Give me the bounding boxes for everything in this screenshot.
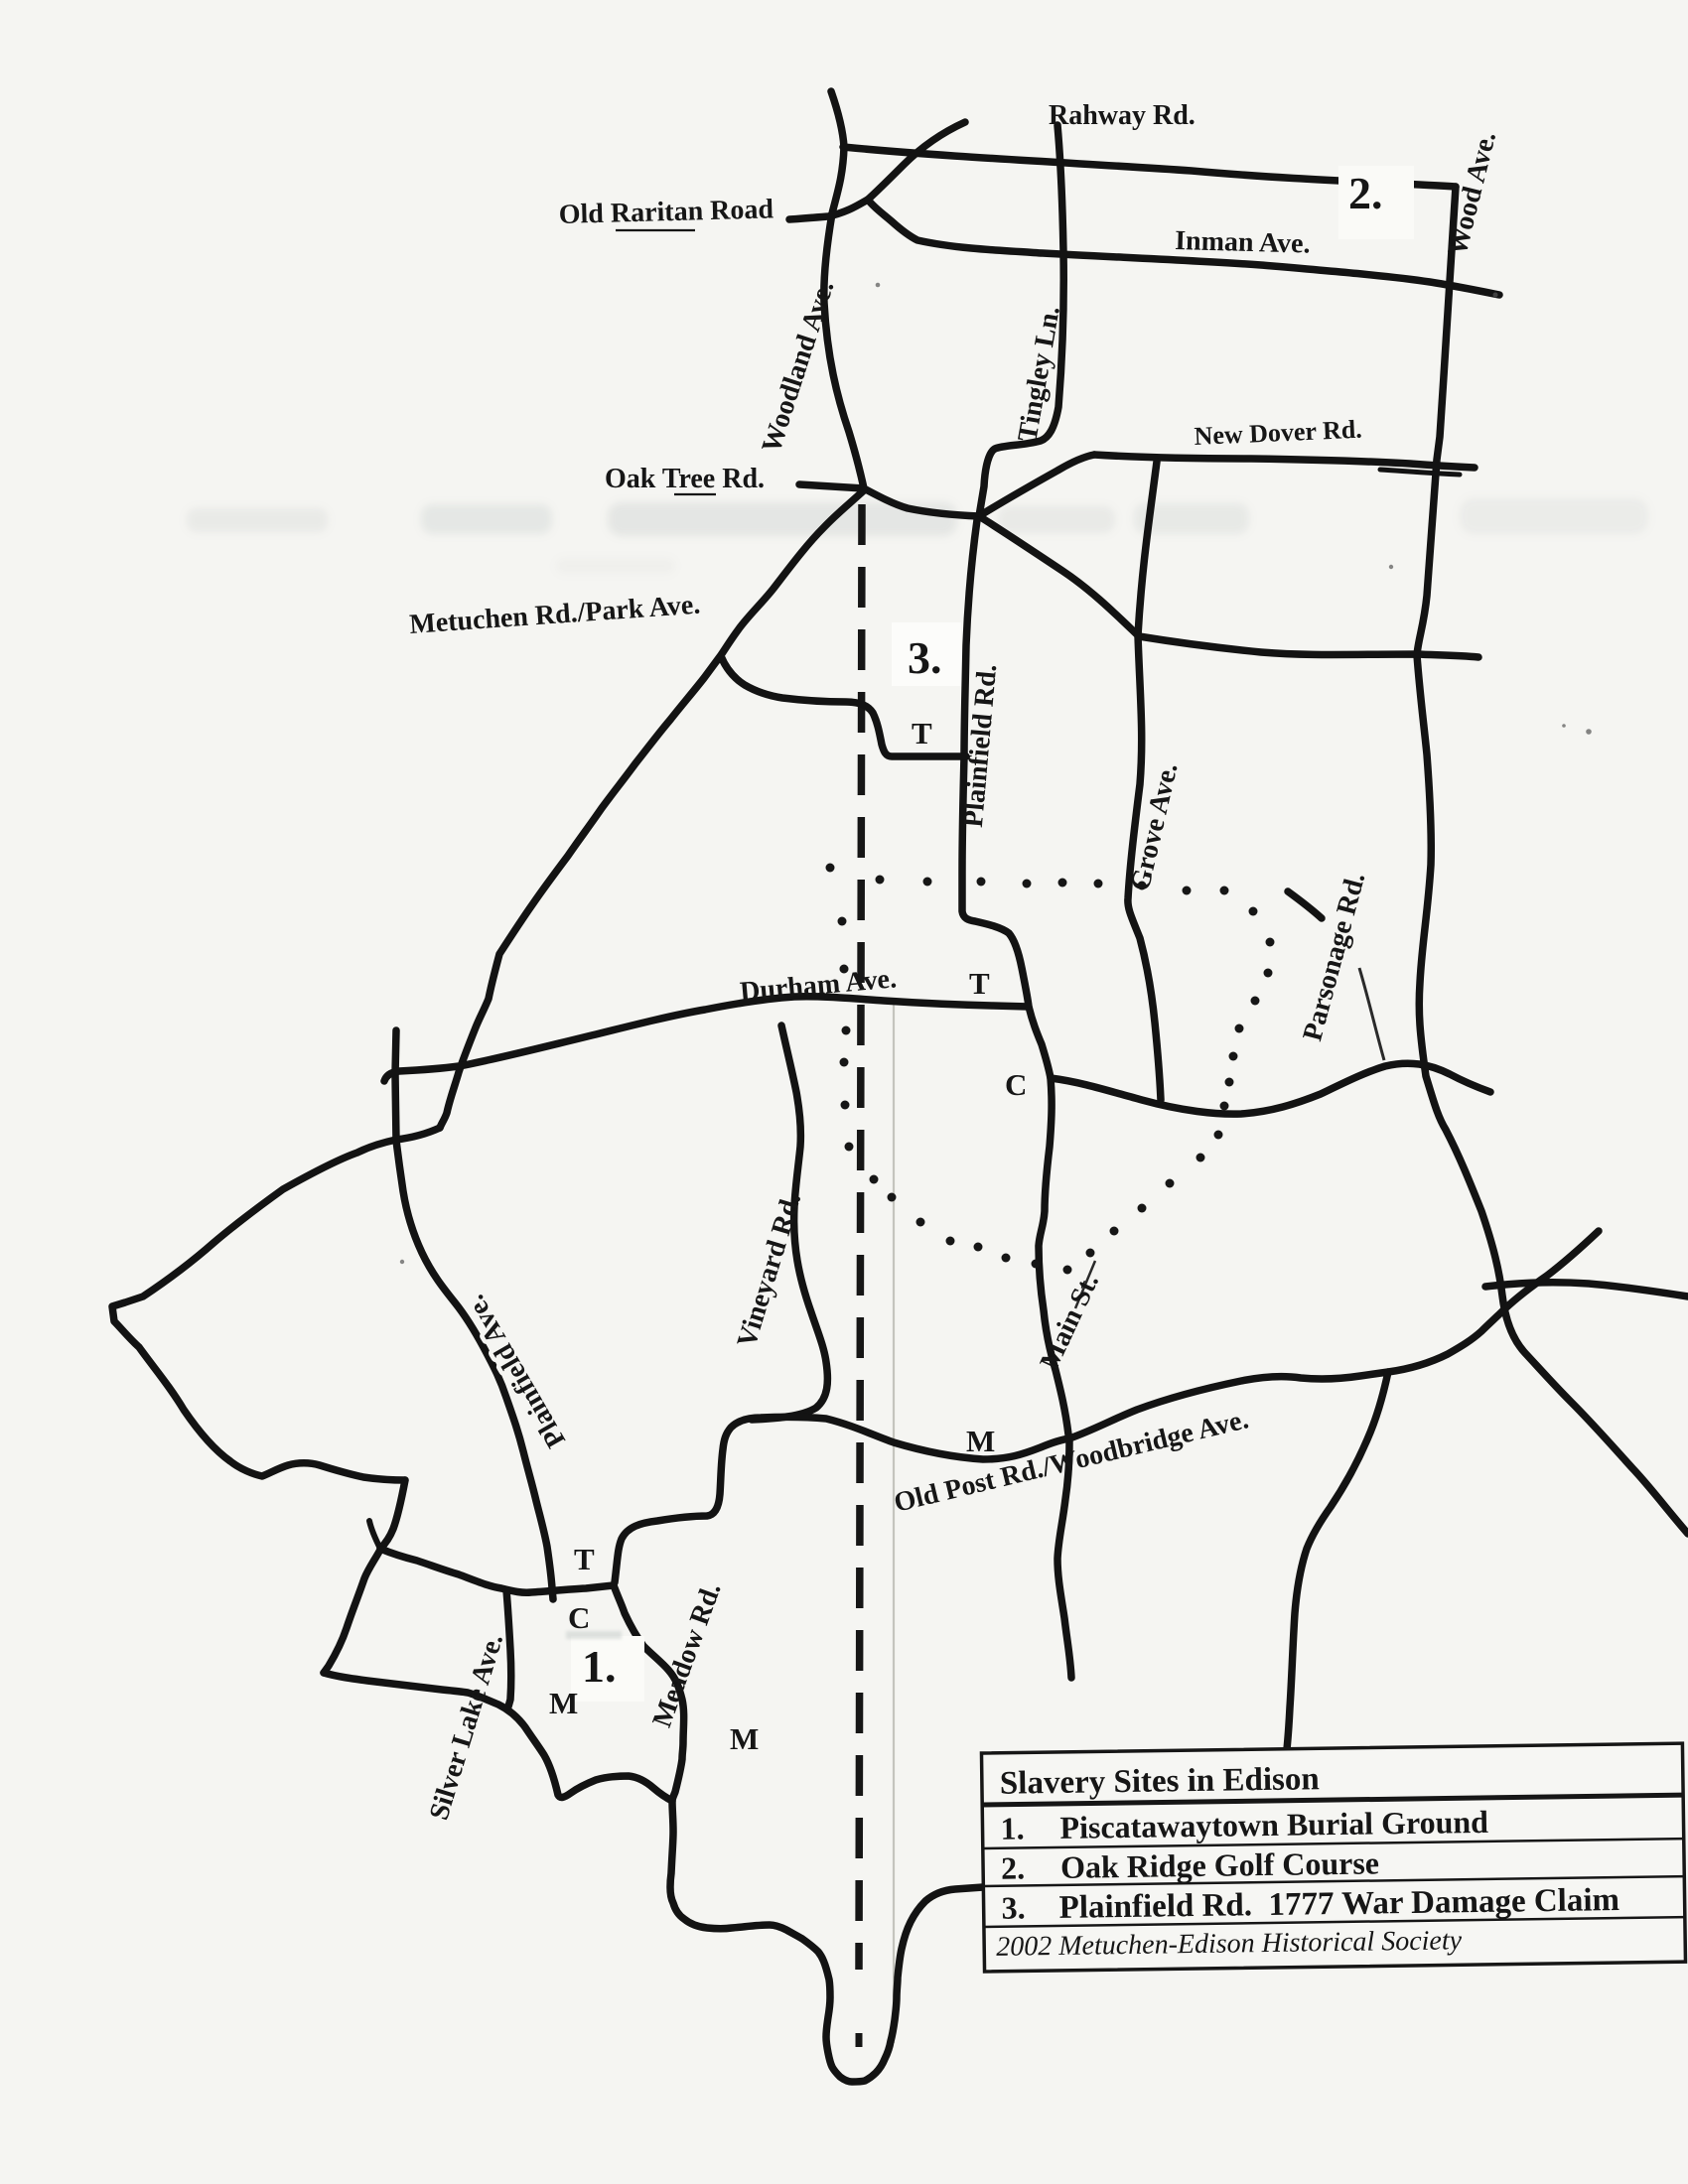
svg-text:Inman Ave.: Inman Ave. (1175, 225, 1311, 260)
svg-text:3.: 3. (908, 632, 942, 683)
svg-text:Oak Ridge Golf Course: Oak Ridge Golf Course (1060, 1844, 1379, 1884)
svg-text:C: C (568, 1600, 590, 1635)
svg-text:T: T (574, 1542, 595, 1576)
svg-text:Old Raritan Road: Old Raritan Road (558, 194, 774, 230)
svg-text:T: T (912, 716, 932, 751)
svg-text:1.: 1. (1000, 1810, 1025, 1845)
svg-text:Slavery Sites in Edison: Slavery Sites in Edison (1000, 1761, 1320, 1801)
svg-text:Oak Tree Rd.: Oak Tree Rd. (605, 464, 765, 494)
svg-text:3.: 3. (1001, 1889, 1026, 1925)
svg-text:2.: 2. (1001, 1849, 1026, 1885)
svg-text:Piscatawaytown Burial Ground: Piscatawaytown Burial Ground (1059, 1804, 1488, 1845)
svg-text:2002 Metuchen-Edison Historica: 2002 Metuchen-Edison Historical Society (996, 1925, 1463, 1963)
svg-text:M: M (966, 1424, 995, 1458)
svg-text:2.: 2. (1348, 168, 1383, 218)
svg-text:1.: 1. (582, 1641, 617, 1692)
svg-text:M: M (730, 1721, 759, 1756)
svg-text:Rahway Rd.: Rahway Rd. (1049, 100, 1196, 131)
svg-text:M: M (549, 1686, 578, 1720)
svg-text:T: T (969, 966, 990, 1001)
svg-text:C: C (1005, 1067, 1027, 1102)
